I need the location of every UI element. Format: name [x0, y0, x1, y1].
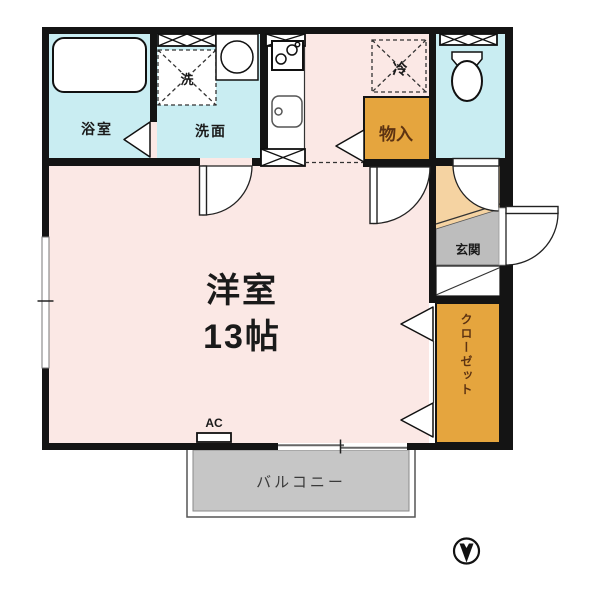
ac-label: AC [196, 416, 232, 430]
floor-plan: 浴室 洗 洗面 冷 物入 玄関 クローゼット 洋室 13帖 AC バルコニー [0, 0, 600, 600]
washer-pan-label: 洗 [172, 69, 202, 88]
toilet-icon [452, 52, 482, 101]
bathtub-icon [53, 38, 146, 92]
entrance-label: 玄関 [446, 239, 490, 258]
stove-icon [272, 41, 303, 70]
main-room-label: 洋室 13帖 [152, 268, 332, 360]
north-arrow-icon [454, 539, 479, 564]
kitchen-sink-icon [272, 96, 302, 127]
refrigerator-label: 冷 [384, 58, 416, 79]
washbasin-icon [216, 34, 258, 80]
storage-label: 物入 [363, 120, 429, 145]
pipe-space-hatch-toilet [440, 34, 497, 45]
washroom-label: 洗面 [183, 121, 239, 141]
pipe-space-hatch-kitchen-bottom [261, 149, 305, 166]
ac-unit-box [197, 433, 231, 442]
bathroom-label: 浴室 [71, 119, 123, 139]
pipe-space-hatch-washroom [158, 34, 216, 46]
balcony-label: バルコニー [231, 471, 371, 492]
closet-label: クローゼット [458, 313, 475, 439]
front-door [499, 207, 558, 266]
main-room-size: 13帖 [152, 314, 332, 360]
main-room-name: 洋室 [152, 268, 332, 314]
